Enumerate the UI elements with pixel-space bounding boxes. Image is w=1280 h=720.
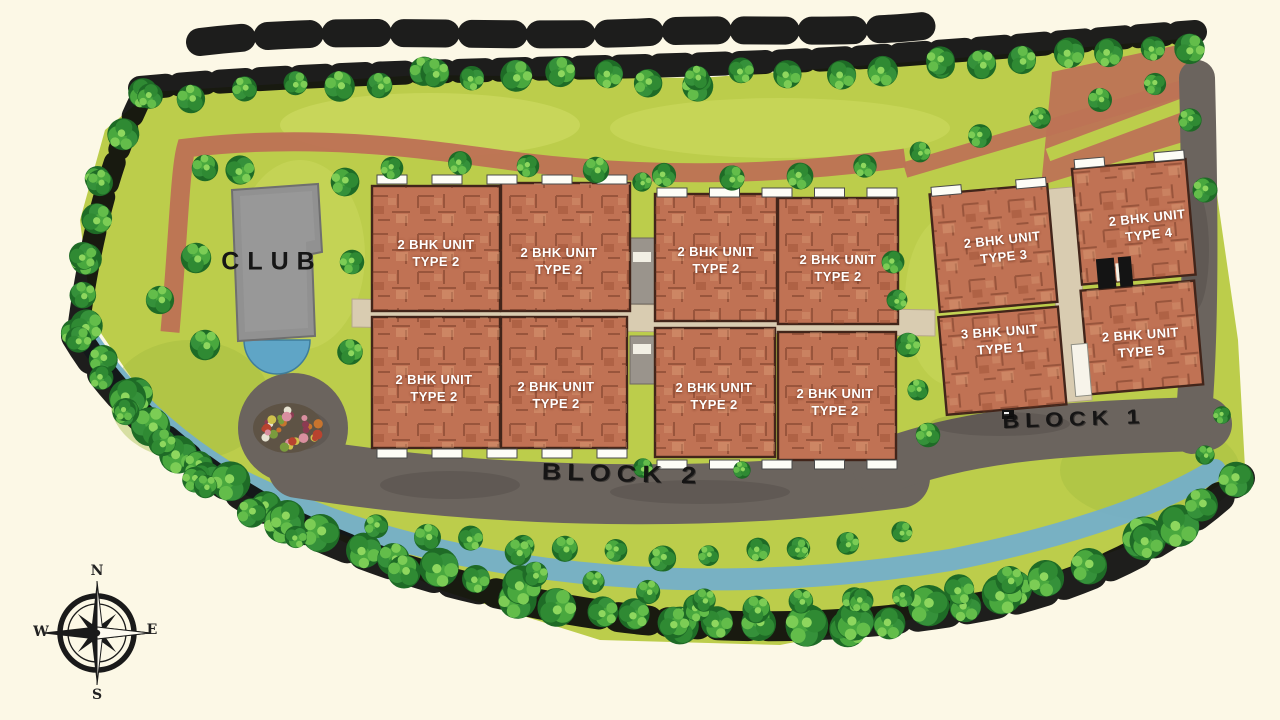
block1-road-label: BLOCK 1 — [1002, 405, 1146, 434]
unit-type-line: TYPE 2 — [396, 389, 473, 406]
balcony — [432, 449, 462, 458]
unit-type-line: 2 BHK UNIT — [797, 386, 874, 403]
balcony — [597, 449, 627, 458]
unit-type-line: TYPE 2 — [521, 262, 598, 279]
tree-icon — [237, 498, 266, 527]
unit-label-block1-4: 2 BHK UNIT TYPE 5 — [1101, 324, 1180, 363]
club-label: CLUB — [221, 248, 322, 277]
unit-label-block2-8: 2 BHK UNIT TYPE 2 — [797, 386, 874, 420]
balcony — [487, 175, 517, 184]
flower — [288, 437, 296, 445]
tree-icon — [867, 56, 898, 87]
unit-label-block2-4: 2 BHK UNIT TYPE 2 — [518, 379, 595, 413]
flower — [312, 435, 318, 441]
flower — [265, 429, 271, 435]
flower — [267, 415, 276, 424]
balcony — [762, 188, 792, 197]
balcony — [377, 449, 407, 458]
balcony — [657, 188, 687, 197]
compass-west-label: W — [33, 624, 49, 640]
unit-label-block2-6: 2 BHK UNIT TYPE 2 — [800, 252, 877, 286]
balcony — [432, 175, 462, 184]
tree-icon — [652, 163, 676, 187]
balcony — [1016, 177, 1047, 189]
flower — [280, 442, 289, 451]
compass-east-label: E — [147, 622, 158, 638]
balcony — [542, 449, 572, 458]
flower — [276, 428, 281, 433]
unit-label-block2-7: 2 BHK UNIT TYPE 2 — [676, 380, 753, 414]
unit-type-line: TYPE 2 — [398, 254, 475, 271]
flower — [299, 433, 309, 443]
unit-type-line: TYPE 2 — [797, 403, 874, 420]
balcony — [487, 449, 517, 458]
compass-north-label: N — [91, 563, 104, 579]
unit-type-line: TYPE 2 — [518, 396, 595, 413]
balcony — [815, 188, 845, 197]
flower — [303, 427, 310, 434]
flower — [301, 415, 307, 421]
unit-label-block1-3: 3 BHK UNIT TYPE 1 — [960, 321, 1039, 360]
unit-label-block2-3: 2 BHK UNIT TYPE 2 — [396, 372, 473, 406]
unit-label-block2-5: 2 BHK UNIT TYPE 2 — [678, 244, 755, 278]
balcony — [1074, 157, 1105, 169]
balcony — [867, 460, 897, 469]
compass-rose-icon — [44, 581, 150, 685]
flower — [314, 419, 323, 428]
unit-label-block2-1: 2 BHK UNIT TYPE 2 — [398, 237, 475, 271]
unit-type-line: 2 BHK UNIT — [398, 237, 475, 254]
unit-type-line: 2 BHK UNIT — [678, 244, 755, 261]
site-plan: CLUB 2 BHK UNIT TYPE 2 2 BHK UNIT TYPE 2… — [0, 0, 1280, 720]
compass-south-label: S — [92, 687, 102, 703]
unit-type-line: 2 BHK UNIT — [518, 379, 595, 396]
unit-label-block2-2: 2 BHK UNIT TYPE 2 — [521, 245, 598, 279]
unit-type-line: TYPE 2 — [676, 397, 753, 414]
balcony — [1154, 150, 1185, 162]
balcony — [931, 185, 962, 197]
balcony — [762, 460, 792, 469]
unit-type-line: 2 BHK UNIT — [676, 380, 753, 397]
unit-type-line: TYPE 2 — [678, 261, 755, 278]
site-plan-canvas — [0, 0, 1280, 720]
block2-road-label: BLOCK 2 — [541, 458, 702, 489]
unit-type-line: TYPE 2 — [800, 269, 877, 286]
balcony — [815, 460, 845, 469]
balcony — [867, 188, 897, 197]
unit-type-line: 2 BHK UNIT — [521, 245, 598, 262]
balcony — [542, 175, 572, 184]
unit-type-line: 2 BHK UNIT — [396, 372, 473, 389]
unit-type-line: 2 BHK UNIT — [800, 252, 877, 269]
tree-icon — [69, 242, 97, 270]
flower — [282, 412, 292, 422]
